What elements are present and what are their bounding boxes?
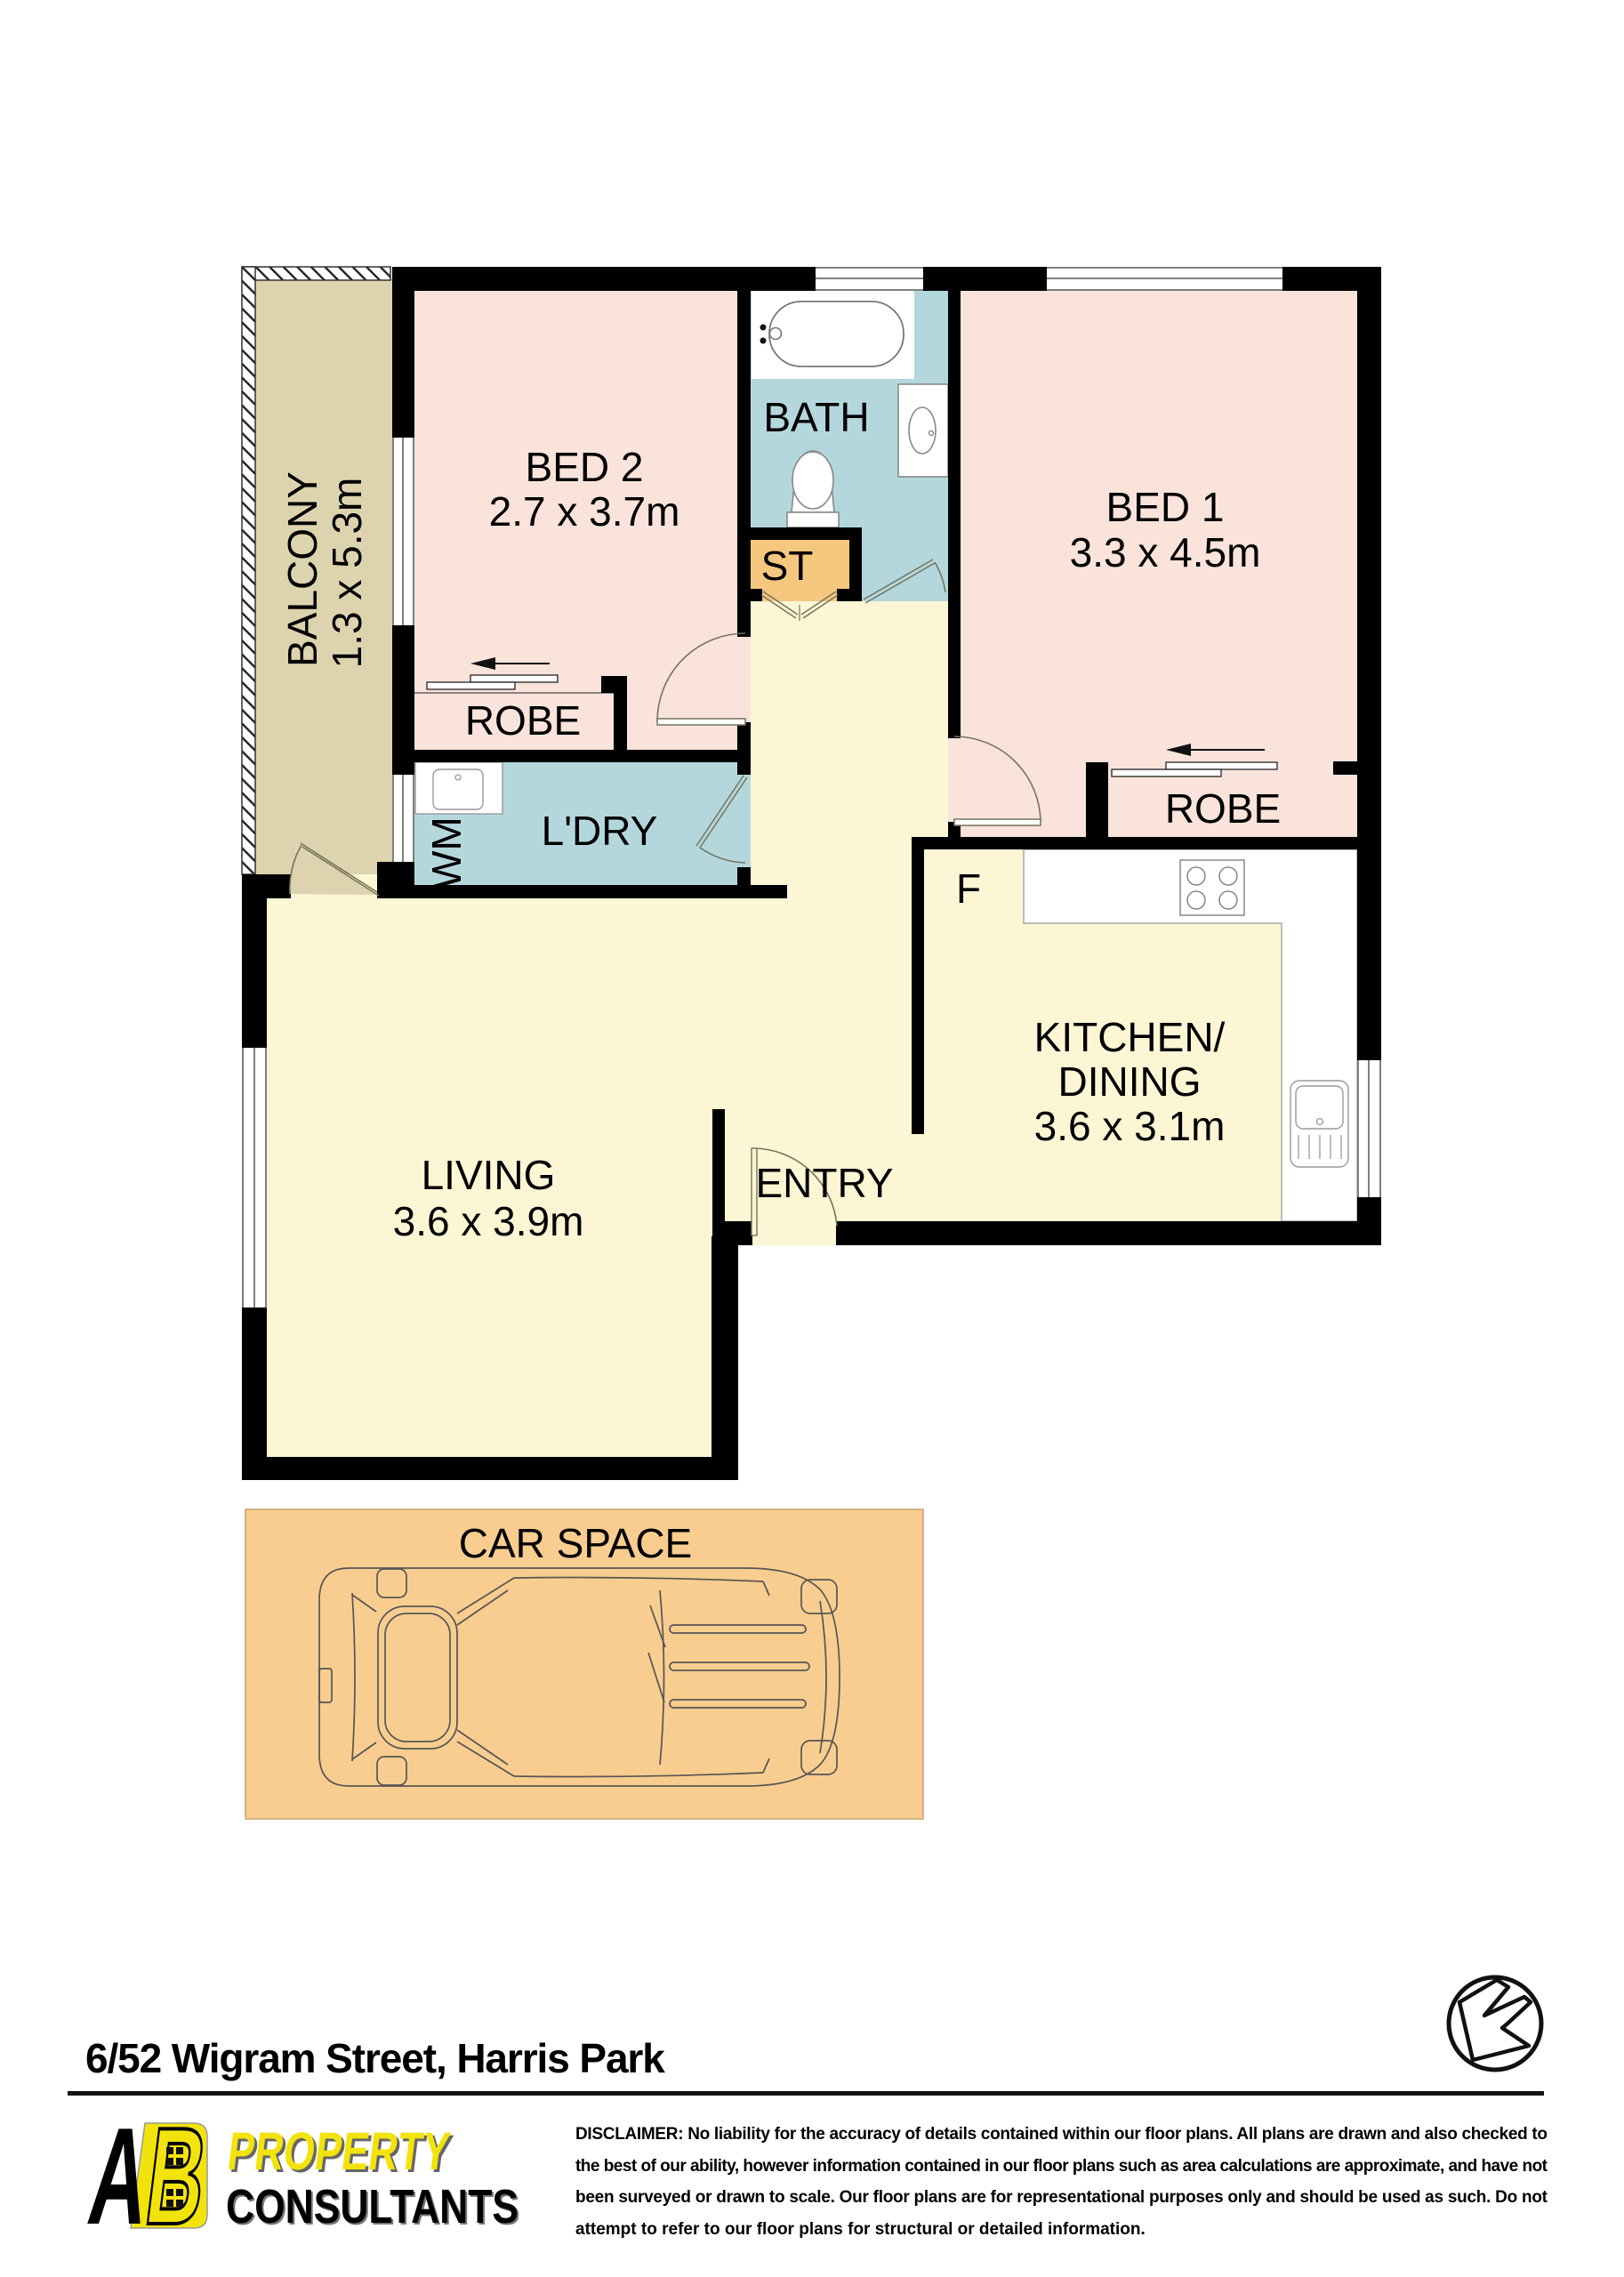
svg-text:been surveyed or drawn to scal: been surveyed or drawn to scale. Our flo… bbox=[575, 2188, 1548, 2207]
svg-text:3.6 x 3.1m: 3.6 x 3.1m bbox=[1034, 1103, 1226, 1149]
svg-text:ROBE: ROBE bbox=[465, 697, 581, 744]
svg-text:BATH: BATH bbox=[763, 394, 869, 440]
svg-text:BALCONY: BALCONY bbox=[279, 471, 326, 667]
svg-text:attempt to refer to our floor: attempt to refer to our floor plans for … bbox=[575, 2220, 1146, 2239]
svg-text:PROPERTY: PROPERTY bbox=[224, 2120, 453, 2181]
svg-text:3.3 x 4.5m: 3.3 x 4.5m bbox=[1070, 529, 1261, 575]
svg-text:ST: ST bbox=[761, 543, 814, 589]
svg-text:the best of our ability, howev: the best of our ability, however informa… bbox=[575, 2157, 1548, 2176]
svg-text:BED 1: BED 1 bbox=[1106, 484, 1225, 530]
svg-text:ROBE: ROBE bbox=[1165, 785, 1281, 832]
svg-text:DINING: DINING bbox=[1058, 1058, 1202, 1105]
svg-text:1.3 x 5.3m: 1.3 x 5.3m bbox=[324, 478, 370, 669]
svg-text:DISCLAIMER: No liability for t: DISCLAIMER: No liability for the accurac… bbox=[575, 2125, 1548, 2144]
svg-text:CONSULTANTS: CONSULTANTS bbox=[226, 2180, 519, 2233]
svg-text:LIVING: LIVING bbox=[422, 1152, 556, 1198]
svg-text:F: F bbox=[956, 865, 981, 912]
svg-text:2.7 x 3.7m: 2.7 x 3.7m bbox=[489, 488, 680, 535]
svg-text:BED 2: BED 2 bbox=[526, 444, 644, 490]
svg-text:3.6 x 3.9m: 3.6 x 3.9m bbox=[393, 1198, 584, 1244]
svg-text:KITCHEN/: KITCHEN/ bbox=[1034, 1014, 1226, 1060]
svg-text:ENTRY: ENTRY bbox=[755, 1160, 893, 1206]
svg-text:AB: AB bbox=[82, 2099, 214, 2253]
svg-text:CAR SPACE: CAR SPACE bbox=[459, 1520, 692, 1566]
svg-text:L'DRY: L'DRY bbox=[542, 808, 658, 854]
svg-text:6/52 Wigram Street, Harris Par: 6/52 Wigram Street, Harris Park bbox=[85, 2035, 665, 2081]
svg-text:WM: WM bbox=[423, 817, 470, 889]
